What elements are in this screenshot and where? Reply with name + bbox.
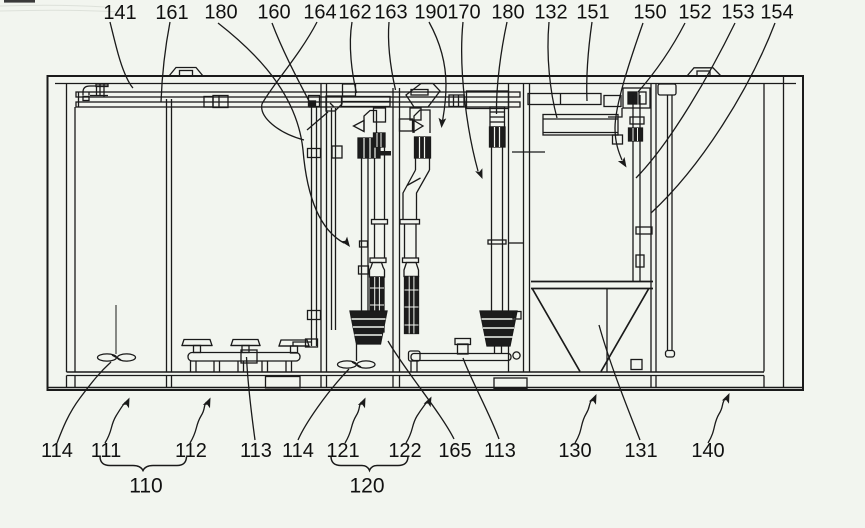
svg-text:130: 130 bbox=[558, 440, 591, 462]
svg-text:164: 164 bbox=[303, 2, 336, 24]
svg-text:131: 131 bbox=[624, 440, 657, 462]
svg-text:114: 114 bbox=[41, 440, 73, 462]
svg-text:153: 153 bbox=[721, 2, 754, 24]
svg-text:152: 152 bbox=[678, 2, 711, 24]
svg-text:154: 154 bbox=[760, 2, 793, 24]
svg-text:165: 165 bbox=[438, 440, 471, 462]
svg-text:122: 122 bbox=[388, 440, 421, 462]
svg-text:111: 111 bbox=[91, 440, 121, 462]
svg-text:113: 113 bbox=[484, 440, 516, 462]
svg-text:141: 141 bbox=[103, 2, 136, 24]
svg-text:160: 160 bbox=[257, 2, 290, 24]
svg-text:121: 121 bbox=[326, 440, 359, 462]
svg-text:120: 120 bbox=[349, 475, 384, 498]
svg-text:151: 151 bbox=[576, 2, 609, 24]
svg-text:190: 190 bbox=[414, 2, 447, 24]
svg-text:161: 161 bbox=[155, 2, 188, 24]
svg-text:180: 180 bbox=[204, 2, 237, 24]
svg-text:112: 112 bbox=[175, 440, 207, 462]
svg-text:162: 162 bbox=[338, 2, 371, 24]
svg-text:170: 170 bbox=[447, 2, 480, 24]
svg-text:113: 113 bbox=[240, 440, 272, 462]
svg-text:114: 114 bbox=[282, 440, 314, 462]
svg-text:163: 163 bbox=[374, 2, 407, 24]
svg-text:150: 150 bbox=[633, 2, 666, 24]
svg-text:140: 140 bbox=[691, 440, 724, 462]
svg-text:132: 132 bbox=[534, 2, 567, 24]
svg-text:110: 110 bbox=[129, 475, 162, 498]
svg-text:180: 180 bbox=[491, 2, 524, 24]
